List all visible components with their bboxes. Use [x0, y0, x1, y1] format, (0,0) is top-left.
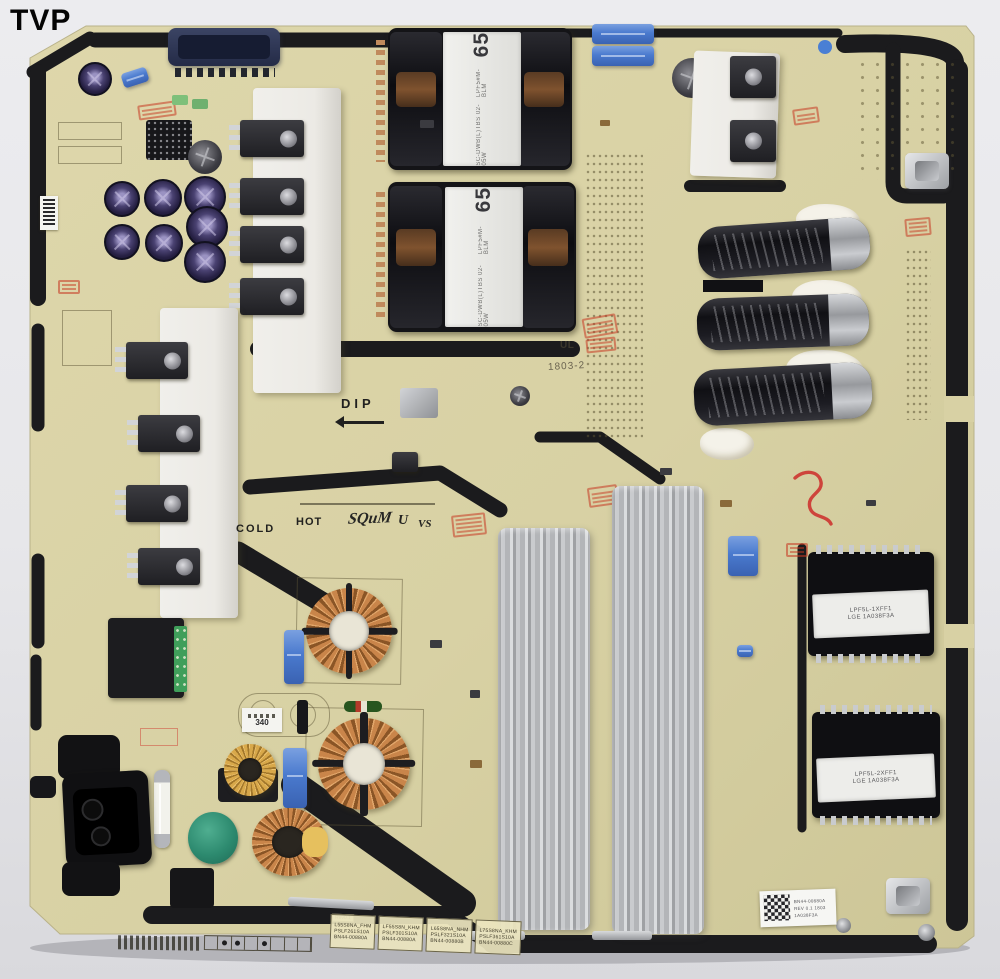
green-disc-varistor: [188, 812, 238, 864]
table-cell: L75S8NA_KHM PSLF361S10A BN44-00880C: [475, 920, 522, 956]
connector-pin-row: [175, 68, 275, 77]
qr-label-line: REV 0.1 1803: [794, 905, 826, 911]
tape-wrap: [302, 827, 328, 857]
transistor: [730, 56, 776, 98]
transistor: [240, 120, 304, 157]
qr-label-line: 1A038F3A: [794, 912, 826, 918]
transformer-part-text: LPF5#M-BLM: [476, 61, 488, 97]
glue-blob: [700, 428, 754, 460]
green-component: [192, 99, 208, 109]
transformer-label: LPF5L-2XFF1 LGE 1A038F3A: [816, 753, 936, 802]
transistor: [126, 342, 188, 379]
table-cell: L55S8NA_FHM PSLF261S10A BN44-00880A: [330, 914, 376, 950]
blue-bead: [818, 40, 832, 54]
transformer-size-text: 65: [470, 32, 494, 57]
black-module: [170, 868, 214, 908]
transformer-part-text: LPF5#M-BLM: [478, 216, 490, 254]
llc-transformer-1: LPF5L-1XFF1 LGE 1A038F3A: [808, 552, 934, 656]
main-transformer-1: 65 LPF5#M-BLM SC-DWB(L)TBS 02-05W: [388, 28, 572, 170]
green-component: [172, 95, 188, 105]
small-toroid: [224, 744, 276, 796]
mini-sticker: 340: [242, 708, 282, 732]
smd-part: [660, 468, 672, 475]
metal-can-cap: [510, 386, 530, 406]
electrolytic-cap: [78, 62, 112, 96]
silkscreen-dip: DIP: [341, 396, 375, 411]
transformer-lot-text: LGE 1A038F3A: [848, 613, 895, 622]
aluminum-heatsink: [612, 486, 704, 934]
smd-part: [866, 500, 876, 506]
electrolytic-cap: [104, 181, 140, 217]
qr-label-line: BN44-00880A: [794, 898, 826, 904]
standby-module: [108, 618, 184, 698]
transformer-label: 65 LPF5#M-BLM SC-DWB(L)TBS 02-05W: [445, 187, 523, 327]
metal-can-cap: [188, 140, 222, 174]
red-stamp: [786, 543, 808, 557]
transformer-size-text: 65: [472, 187, 496, 212]
transistor: [240, 178, 304, 215]
smd-part: [720, 500, 732, 507]
label-bar: [703, 280, 763, 292]
smd-part: [470, 760, 482, 768]
toroid-choke: [306, 588, 392, 674]
silk-box: [58, 146, 122, 164]
barcode-sticker: [40, 196, 58, 230]
smd-part: [470, 690, 480, 698]
blue-film-cap: [592, 24, 654, 44]
main-transformer-2: 65 LPF5#M-BLM SC-DWB(L)TBS 02-05W: [388, 182, 576, 332]
transformer-spec-text: SC-DWB(L)TBS 02-05W: [478, 258, 490, 327]
qr-sticker: BN44-00880A REV 0.1 1803 1A038F3A: [759, 889, 836, 928]
metal-clip: [905, 153, 949, 189]
pcb-product-photo: 65 LPF5#M-BLM SC-DWB(L)TBS 02-05W 65 LPF…: [0, 0, 1000, 979]
module-pcb-edge: [174, 626, 187, 692]
transformer-lot-text: LGE 1A038F3A: [853, 777, 900, 786]
silkscreen-brand-logo: SQuM: [347, 509, 393, 529]
transformer-label: LPF5L-1XFF1 LGE 1A038F3A: [812, 589, 930, 638]
table-cell: L65S8NA_NHM PSLF321S10A BN44-00880B: [426, 918, 473, 954]
table-cell: LF55S8N_KHM PSLF301S10A BN44-00880A: [378, 916, 424, 952]
transistor: [126, 485, 188, 522]
electrolytic-cap: [104, 224, 140, 260]
llc-transformer-2: LPF5L-2XFF1 LGE 1A038F3A: [812, 712, 940, 818]
silk-box: [62, 310, 112, 366]
silkscreen-hot: HOT: [296, 516, 322, 528]
red-stamp: [58, 280, 80, 294]
toroid-inductor: [252, 808, 326, 876]
aluminum-heatsink: [498, 528, 590, 930]
ul-mark: UL: [560, 340, 574, 351]
electrolytic-cap: [145, 224, 183, 262]
blue-film-cap: [592, 46, 654, 66]
dip-arrow-icon: [338, 421, 384, 424]
edge-silk-text: [118, 935, 200, 950]
glass-fuse: [154, 770, 170, 848]
qr-code-icon: [764, 894, 791, 921]
transistor: [138, 415, 200, 452]
bulk-capacitor: [696, 293, 870, 351]
screw: [836, 918, 851, 933]
mini-sticker-number: 340: [255, 718, 268, 727]
blue-film-cap-small: [737, 645, 753, 657]
transistor: [138, 548, 200, 585]
option-grid: [204, 935, 312, 952]
ac-inlet-bottom-tab: [62, 862, 120, 896]
transformer-label: 65 LPF5#M-BLM SC-DWB(L)TBS 02-05W: [443, 32, 521, 166]
ac-inlet-body: [62, 770, 153, 868]
watermark-text: TVP: [10, 4, 71, 38]
cert-mark: VS: [418, 518, 431, 530]
bulk-capacitor: [693, 361, 874, 426]
small-transistor: [392, 452, 418, 472]
power-connector: [168, 28, 280, 66]
transformer-spec-text: SC-DWB(L)TBS 02-05W: [476, 101, 488, 166]
transistor: [240, 226, 304, 263]
via-column-grid-right: [905, 248, 931, 420]
transistor: [730, 120, 776, 162]
cert-mark: U: [398, 513, 408, 529]
smd-part: [600, 120, 610, 126]
silkscreen-cold: COLD: [236, 523, 275, 535]
transformer-pin-strip: [376, 192, 385, 322]
ic-module: [146, 120, 192, 160]
toroid-choke: [318, 718, 410, 810]
transformer-pin-strip: [376, 40, 385, 162]
silk-box: [58, 122, 122, 140]
silk-line: [300, 503, 435, 505]
resistor: [344, 701, 382, 712]
blue-film-cap: [728, 536, 758, 576]
via-column-grid: [585, 152, 643, 440]
electrolytic-cap: [144, 179, 182, 217]
red-stamp: [904, 217, 931, 237]
ac-inlet-latch: [30, 776, 56, 798]
pink-connector-outline: [140, 728, 178, 746]
corner-rivet: [918, 924, 935, 941]
smd-part: [430, 640, 442, 648]
blue-film-cap: [283, 748, 307, 808]
smd-part: [420, 120, 434, 128]
metal-shield-square: [400, 388, 438, 418]
electrolytic-cap: [184, 241, 226, 283]
date-code: 1803-2: [548, 360, 586, 373]
blue-film-cap: [284, 630, 304, 684]
diode: [297, 700, 308, 734]
ac-inlet-recess: [72, 786, 139, 855]
transistor: [240, 278, 304, 315]
metal-clip: [886, 878, 930, 914]
red-stamp: [451, 512, 487, 537]
